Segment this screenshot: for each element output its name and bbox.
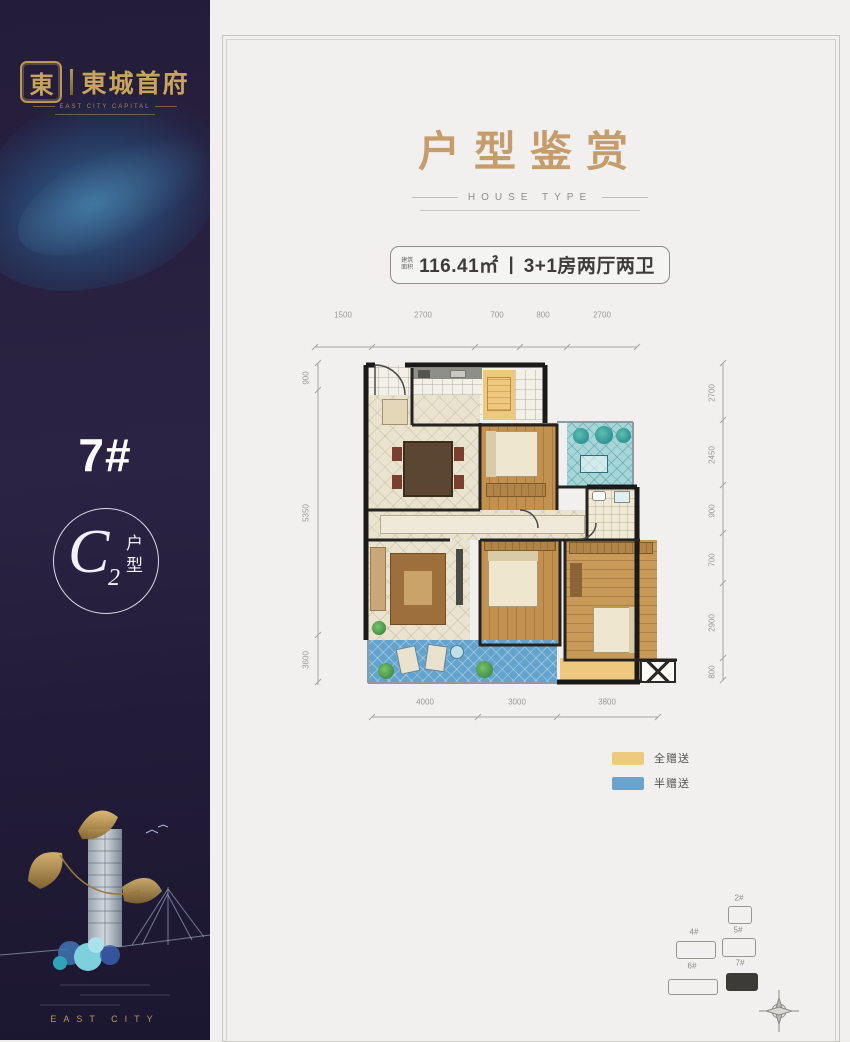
dim-left-2: 5350 [302, 504, 311, 522]
site-building-label: 4# [690, 928, 699, 937]
dim-right-1: 2700 [708, 384, 717, 402]
dim-left-1: 900 [302, 371, 311, 384]
unit-letter: C [68, 517, 109, 588]
unit-type-emblem: C 2 户 型 [53, 508, 159, 614]
area-prefix: 建筑面积 [401, 258, 413, 272]
site-building-2 [728, 906, 752, 924]
page-title: 户型鉴赏 [222, 118, 838, 179]
site-building-5 [722, 938, 756, 957]
legend-item-half-gift: 半赠送 [612, 775, 732, 791]
dim-right-6: 800 [708, 665, 717, 678]
dim-bottom-2: 3000 [508, 698, 526, 707]
site-building-label: 5# [734, 926, 743, 935]
site-building-7-highlighted [726, 973, 758, 991]
logo-divider [70, 69, 73, 95]
compass-icon [757, 988, 801, 1034]
page-subtitle: HOUSE TYPE [222, 192, 838, 203]
legend: 全赠送 半赠送 [612, 750, 732, 800]
night-city-illustration [0, 795, 210, 1020]
dim-bottom-3: 3800 [598, 698, 616, 707]
unit-number: 2 [108, 565, 120, 592]
dim-top-3: 700 [490, 311, 503, 320]
dim-right-4: 700 [708, 553, 717, 566]
birds-icon [146, 825, 168, 833]
legend-swatch-full [612, 752, 644, 765]
subtitle-rule [420, 210, 640, 211]
dim-top-1: 1500 [334, 311, 352, 320]
site-building-label: 7# [736, 959, 745, 968]
sidebar-footer-text: EAST CITY [0, 1014, 210, 1024]
layout-value: 3+1房两厅两卫 [524, 251, 655, 278]
brand-tagline-rule [55, 114, 155, 115]
building-number: 7# [0, 428, 210, 482]
page: 東 東城首府 EAST CITY CAPITAL 7# C 2 户 型 [0, 0, 850, 1040]
dim-top-2: 2700 [414, 311, 432, 320]
badge-separator: | [509, 254, 514, 275]
legend-item-full-gift: 全赠送 [612, 750, 732, 766]
dim-left-3: 3600 [302, 651, 311, 669]
floorplan-walls-and-dimensions [280, 295, 740, 725]
site-building-label: 2# [735, 894, 744, 903]
floorplan: 1500 2700 700 800 2700 4000 3000 3800 90… [280, 295, 740, 725]
brand-subtitle: EAST CITY CAPITAL [0, 104, 210, 110]
unit-suffix: 户 型 [126, 533, 143, 577]
brand-seal-icon: 東 [20, 61, 62, 103]
dim-right-3: 900 [708, 504, 717, 517]
site-building-label: 6# [688, 962, 697, 971]
brand-name: 東城首府 [81, 64, 189, 100]
spec-badge: 建筑面积 116.41㎡ | 3+1房两厅两卫 [222, 246, 838, 284]
dim-right-5: 2900 [708, 614, 717, 632]
brand-logo: 東 東城首府 [0, 58, 210, 106]
dim-right-2: 2450 [708, 446, 717, 464]
area-value: 116.41㎡ [419, 251, 499, 278]
dim-bottom-1: 4000 [416, 698, 434, 707]
site-building-6 [668, 979, 718, 995]
dim-top-4: 800 [536, 311, 549, 320]
dim-top-5: 2700 [593, 311, 611, 320]
legend-swatch-half [612, 777, 644, 790]
sidebar: 東 東城首府 EAST CITY CAPITAL 7# C 2 户 型 [0, 0, 210, 1040]
site-building-4 [676, 941, 716, 959]
